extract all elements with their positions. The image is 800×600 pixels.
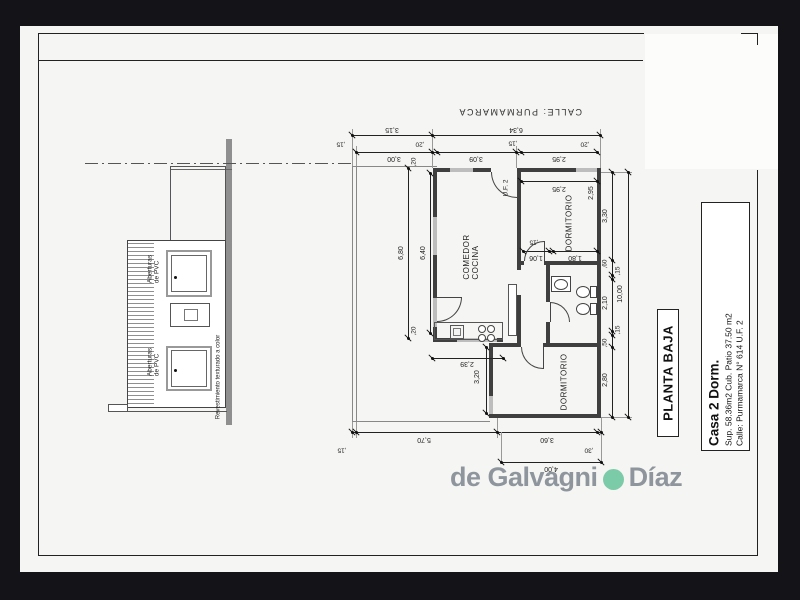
street-name: CALLE: PURMAMARCA xyxy=(458,107,582,117)
dim-20-a: ,20 xyxy=(415,140,424,147)
ext-10 xyxy=(497,418,498,438)
planta-baja-box: PLANTA BAJA xyxy=(657,309,679,437)
title-block: Casa 2 Dorm. Sup. 58.36m2 Cub. Patio 37.… xyxy=(701,202,750,451)
dim-node xyxy=(429,172,432,175)
dim-node xyxy=(485,412,488,415)
elev-aberturas-2: Aberturasde PVC xyxy=(147,348,162,376)
room-dormitorio-1: DORMITORIO xyxy=(564,195,573,252)
drawing-sheet: CALLE: PURMAMARCA3,156,343,003,092,95,15… xyxy=(20,26,778,572)
elev-ground-bar xyxy=(226,139,232,425)
room-comedor-cocina: COMEDORCOCINA xyxy=(462,234,480,279)
dim-node xyxy=(431,134,434,137)
elev-window1-inner xyxy=(171,255,207,292)
dim-3-30: 3,30 xyxy=(602,209,610,223)
dim-node xyxy=(407,337,410,340)
elev-base-step xyxy=(108,404,128,412)
wall-dorm2-top-2 xyxy=(543,343,601,347)
dim-15-f: ,15 xyxy=(614,325,621,334)
wall-house-bottom xyxy=(489,414,601,418)
win-top-2 xyxy=(576,168,597,172)
title-superficie: Sup. 58.36m2 Cub. Patio 37.50 m2 xyxy=(723,208,734,446)
bidet-bowl xyxy=(576,303,590,315)
dim-20-b: ,20 xyxy=(580,140,589,147)
door-arc-dorm2 xyxy=(521,347,543,369)
dim-60: ,60 xyxy=(601,259,608,268)
dim-2-10: 2,10 xyxy=(602,296,610,310)
dim-5-70: 5,70 xyxy=(417,435,431,443)
dim-15-e: ,15 xyxy=(614,266,621,275)
door-arc-bath xyxy=(550,302,570,322)
dim-30: ,30 xyxy=(584,446,593,453)
dim-node xyxy=(611,278,614,281)
wall-hall-1 xyxy=(521,261,524,265)
dim-2-95-wall: 2,95 xyxy=(588,186,596,200)
watermark-text-2: Díaz xyxy=(629,462,683,493)
dim-3-60: 3,60 xyxy=(540,435,554,443)
screenshot-root: CALLE: PURMAMARCA3,156,343,003,092,95,15… xyxy=(0,0,800,600)
dim-3-15: 3,15 xyxy=(385,125,399,133)
bidet-tank xyxy=(590,303,597,315)
dim-line-bottom xyxy=(352,432,601,433)
frame-right-stub xyxy=(757,33,758,45)
dim-node xyxy=(485,346,488,349)
lot-left-b xyxy=(356,166,357,422)
frame-top-stub xyxy=(741,33,758,34)
dim-6-40: 6,40 xyxy=(420,246,428,260)
leaf-entry xyxy=(517,172,518,198)
kitchen-sink-inner xyxy=(453,328,461,336)
wall-int-vert-2 xyxy=(517,295,521,343)
wall-right xyxy=(597,172,601,418)
frame-bottom xyxy=(38,555,758,556)
dim-line-320 xyxy=(486,347,487,413)
dim-node xyxy=(600,431,603,434)
wall-left-2 xyxy=(433,255,437,298)
burner-4 xyxy=(487,334,495,342)
bath-sink-bowl xyxy=(554,279,568,290)
dim-2-39: 2,39 xyxy=(460,359,474,367)
dim-line-top-inner xyxy=(356,152,597,153)
dim-node xyxy=(599,134,602,137)
door-arc-patio xyxy=(437,297,462,322)
dim-2-95-dorm: 2,95 xyxy=(552,184,566,192)
dim-3-09: 3,09 xyxy=(469,154,483,162)
dim-node xyxy=(502,357,505,360)
dim-node xyxy=(436,151,439,154)
dim-line-right-2 xyxy=(628,172,629,417)
dim-3-20: 3,20 xyxy=(474,370,482,384)
dim-node xyxy=(520,151,523,154)
dim-node xyxy=(355,431,358,434)
lot-top xyxy=(352,166,437,167)
watermark-dot-icon xyxy=(603,469,624,490)
title-block-text: Casa 2 Dorm. Sup. 58.36m2 Cub. Patio 37.… xyxy=(706,208,745,446)
toilet-bowl xyxy=(576,286,590,298)
dim-line-295 xyxy=(521,181,597,182)
ext-12 xyxy=(501,432,502,462)
win-dorm2-left xyxy=(489,396,493,414)
dim-node xyxy=(596,250,599,253)
dim-node xyxy=(522,250,525,253)
dim-node xyxy=(429,332,432,335)
municipal-line xyxy=(85,163,352,164)
dim-node xyxy=(611,171,614,174)
frame-left xyxy=(38,33,39,556)
leader-dot xyxy=(174,369,177,372)
ext-11 xyxy=(601,418,602,462)
wall-hall-2 xyxy=(544,261,601,265)
wall-dorm2-top-1 xyxy=(489,343,521,347)
wall-dorm2-left-1 xyxy=(489,343,493,396)
dim-15-a: ,15 xyxy=(336,140,345,147)
dim-6-34: 6,34 xyxy=(509,125,523,133)
dim-50: ,50 xyxy=(601,338,608,347)
dim-node xyxy=(431,151,434,154)
dim-node xyxy=(596,431,599,434)
elev-aberturas-1: Aberturasde PVC xyxy=(147,255,162,283)
wall-bath-2 xyxy=(546,322,550,343)
dim-20-d: ,20 xyxy=(410,326,417,335)
wall-top-2 xyxy=(473,168,491,172)
dim-1-06: 1,06 xyxy=(529,253,543,261)
room-dormitorio-2: DORMITORIO xyxy=(559,354,568,411)
dim-2-80: 2,80 xyxy=(602,373,610,387)
dim-node xyxy=(611,259,614,262)
elev-door-panel xyxy=(184,309,198,321)
dim-node xyxy=(520,180,523,183)
lot-bottom xyxy=(352,421,490,422)
planta-baja-label: PLANTA BAJA xyxy=(661,325,676,421)
burner-2 xyxy=(487,325,495,333)
kitchen-strip xyxy=(508,284,517,336)
dim-15-c: ,15 xyxy=(529,238,538,245)
toilet-tank xyxy=(590,286,597,298)
dim-node xyxy=(431,357,434,360)
leader-dot xyxy=(174,276,177,279)
elev-revestimiento: Revestimiento texturado a color xyxy=(216,335,223,419)
dim-node xyxy=(351,134,354,137)
dim-3-00: 3,00 xyxy=(387,154,401,162)
unit-label: U.F. 2 xyxy=(502,180,509,197)
frame-right xyxy=(757,170,758,556)
lot-left-a xyxy=(352,166,353,422)
wall-top-3 xyxy=(517,168,576,172)
dim-node xyxy=(627,171,630,174)
dim-2-95-top: 2,95 xyxy=(552,154,566,162)
dim-line-right-1 xyxy=(612,172,613,417)
leaf-dorm2 xyxy=(543,347,544,369)
ext-9 xyxy=(356,422,357,438)
dim-15-d: ,15 xyxy=(337,446,346,453)
dim-line-680 xyxy=(408,168,409,338)
dim-node xyxy=(548,250,551,253)
burner-3 xyxy=(478,334,486,342)
dim-10-00: 10,00 xyxy=(617,285,625,303)
dim-node xyxy=(355,151,358,154)
watermark-text-1: de Galvagni xyxy=(450,462,598,493)
dim-node xyxy=(552,250,555,253)
dim-node xyxy=(515,151,518,154)
burner-1 xyxy=(478,325,486,333)
dim-node xyxy=(596,151,599,154)
dim-node xyxy=(496,431,499,434)
watermark: de Galvagni Díaz xyxy=(450,462,682,493)
wall-top-1 xyxy=(437,168,450,172)
title-casa: Casa 2 Dorm. xyxy=(706,208,721,446)
dim-node xyxy=(611,416,614,419)
dim-node xyxy=(407,167,410,170)
dim-node xyxy=(596,180,599,183)
title-calle: Calle: Purmamarca N° 614 U.F. 2 xyxy=(734,208,745,446)
dim-node xyxy=(611,346,614,349)
frame-inner-top xyxy=(38,60,643,61)
dim-20-c: ,20 xyxy=(410,157,417,166)
win-top-1 xyxy=(450,168,473,172)
dim-15-b: ,15 xyxy=(508,139,517,146)
dim-line-640 xyxy=(430,173,431,333)
dim-node xyxy=(351,431,354,434)
dim-line-top-outer xyxy=(352,135,601,136)
elev-upper-wall xyxy=(170,166,226,242)
dim-1-80: 1,80 xyxy=(568,253,582,261)
dim-node xyxy=(627,416,630,419)
dim-6-80: 6,80 xyxy=(398,246,406,260)
wall-bath-1 xyxy=(546,265,550,302)
win-left-1 xyxy=(433,217,437,255)
ext-5 xyxy=(356,146,357,166)
white-patch xyxy=(645,34,778,169)
frame-top xyxy=(38,33,644,34)
